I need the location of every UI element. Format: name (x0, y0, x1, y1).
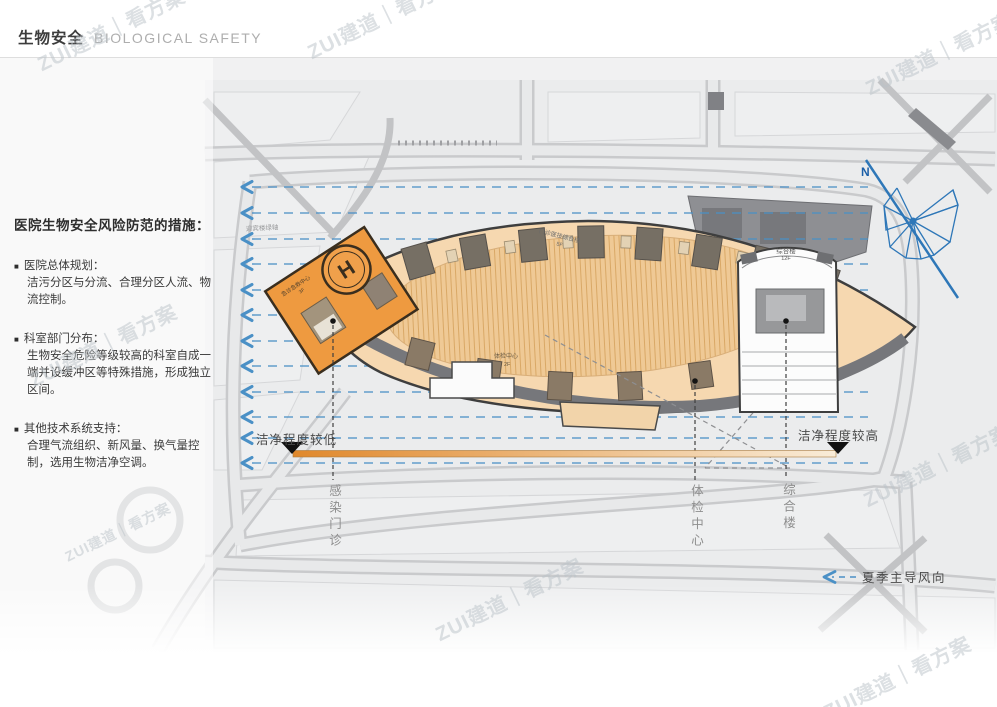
measure-body: 生物安全危险等级较高的科室自成一端并设缓冲区等特殊措施，形成独立区间。 (14, 348, 218, 399)
slide-page: 生物安全 BIOLOGICAL SAFETY (0, 0, 997, 707)
title-chinese: 生物安全 (18, 26, 84, 48)
leader-label-infection: 感染门诊 (325, 484, 344, 550)
watermark: ZUI建道｜看方案 (302, 0, 460, 65)
north-arrow-icon: N (861, 165, 870, 179)
measure-body: 合理气流组织、新风量、换气量控制，选用生物洁净空调。 (14, 438, 218, 472)
measure-item: ■ 科室部门分布： 生物安全危险等级较高的科室自成一端并设缓冲区等特殊措施，形成… (14, 331, 218, 399)
clean-high-label: 洁净程度较高 (798, 428, 879, 443)
measure-item: ■ 其他技术系统支持： 合理气流组织、新风量、换气量控制，选用生物洁净空调。 (14, 421, 218, 472)
leader-label-complex: 综合楼 (779, 483, 798, 533)
bottom-fade (0, 585, 997, 655)
measure-heading: 医院总体规划： (24, 258, 105, 275)
complex-building-label: 综合楼 (776, 246, 796, 255)
south-podium (560, 402, 660, 430)
measures-title: 医院生物安全风险防范的措施： (14, 214, 218, 234)
measure-heading: 其他技术系统支持： (24, 421, 128, 438)
measure-item: ■ 医院总体规划： 洁污分区与分流、合理分区人流、物流控制。 (14, 258, 218, 309)
complex-tower-building: 综合楼 12F (738, 246, 838, 412)
bullet-square-icon: ■ (14, 258, 19, 275)
bullet-square-icon: ■ (14, 421, 19, 438)
summer-wind-label: 夏季主导风向 (862, 570, 946, 585)
checkup-building-label: 体检中心 (494, 352, 518, 360)
checkup-floor-label: 2F (504, 362, 511, 368)
measures-panel: 医院生物安全风险防范的措施： ■ 医院总体规划： 洁污分区与分流、合理分区人流、… (14, 214, 218, 494)
leader-label-checkup: 体检中心 (687, 484, 706, 550)
bottom-margin (0, 652, 997, 707)
title-english: BIOLOGICAL SAFETY (94, 30, 262, 46)
bullet-square-icon: ■ (14, 331, 19, 348)
page-title: 生物安全 BIOLOGICAL SAFETY (18, 26, 262, 48)
measure-body: 洁污分区与分流、合理分区人流、物流控制。 (14, 275, 218, 309)
measure-heading: 科室部门分布： (24, 331, 105, 348)
clean-low-label: 洁净程度较低 (256, 432, 337, 447)
complex-floor-label: 12F (781, 256, 791, 262)
